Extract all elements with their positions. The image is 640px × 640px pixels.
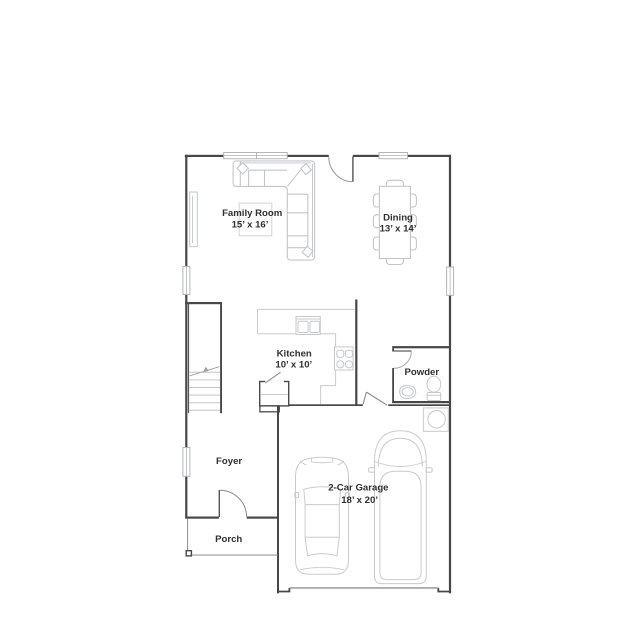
svg-text:2-Car Garage: 2-Car Garage <box>328 482 388 493</box>
svg-text:Family Room: Family Room <box>222 208 282 219</box>
svg-text:15’ x 16’: 15’ x 16’ <box>232 220 269 231</box>
svg-text:18’ x 20’: 18’ x 20’ <box>341 495 378 506</box>
svg-text:Dining: Dining <box>383 213 413 224</box>
svg-text:Powder: Powder <box>404 367 439 378</box>
svg-text:10’ x 10’: 10’ x 10’ <box>275 359 312 370</box>
svg-text:13’ x 14’: 13’ x 14’ <box>380 223 417 234</box>
svg-text:Kitchen: Kitchen <box>277 348 312 359</box>
svg-text:Porch: Porch <box>215 534 242 545</box>
svg-text:Foyer: Foyer <box>216 456 242 467</box>
